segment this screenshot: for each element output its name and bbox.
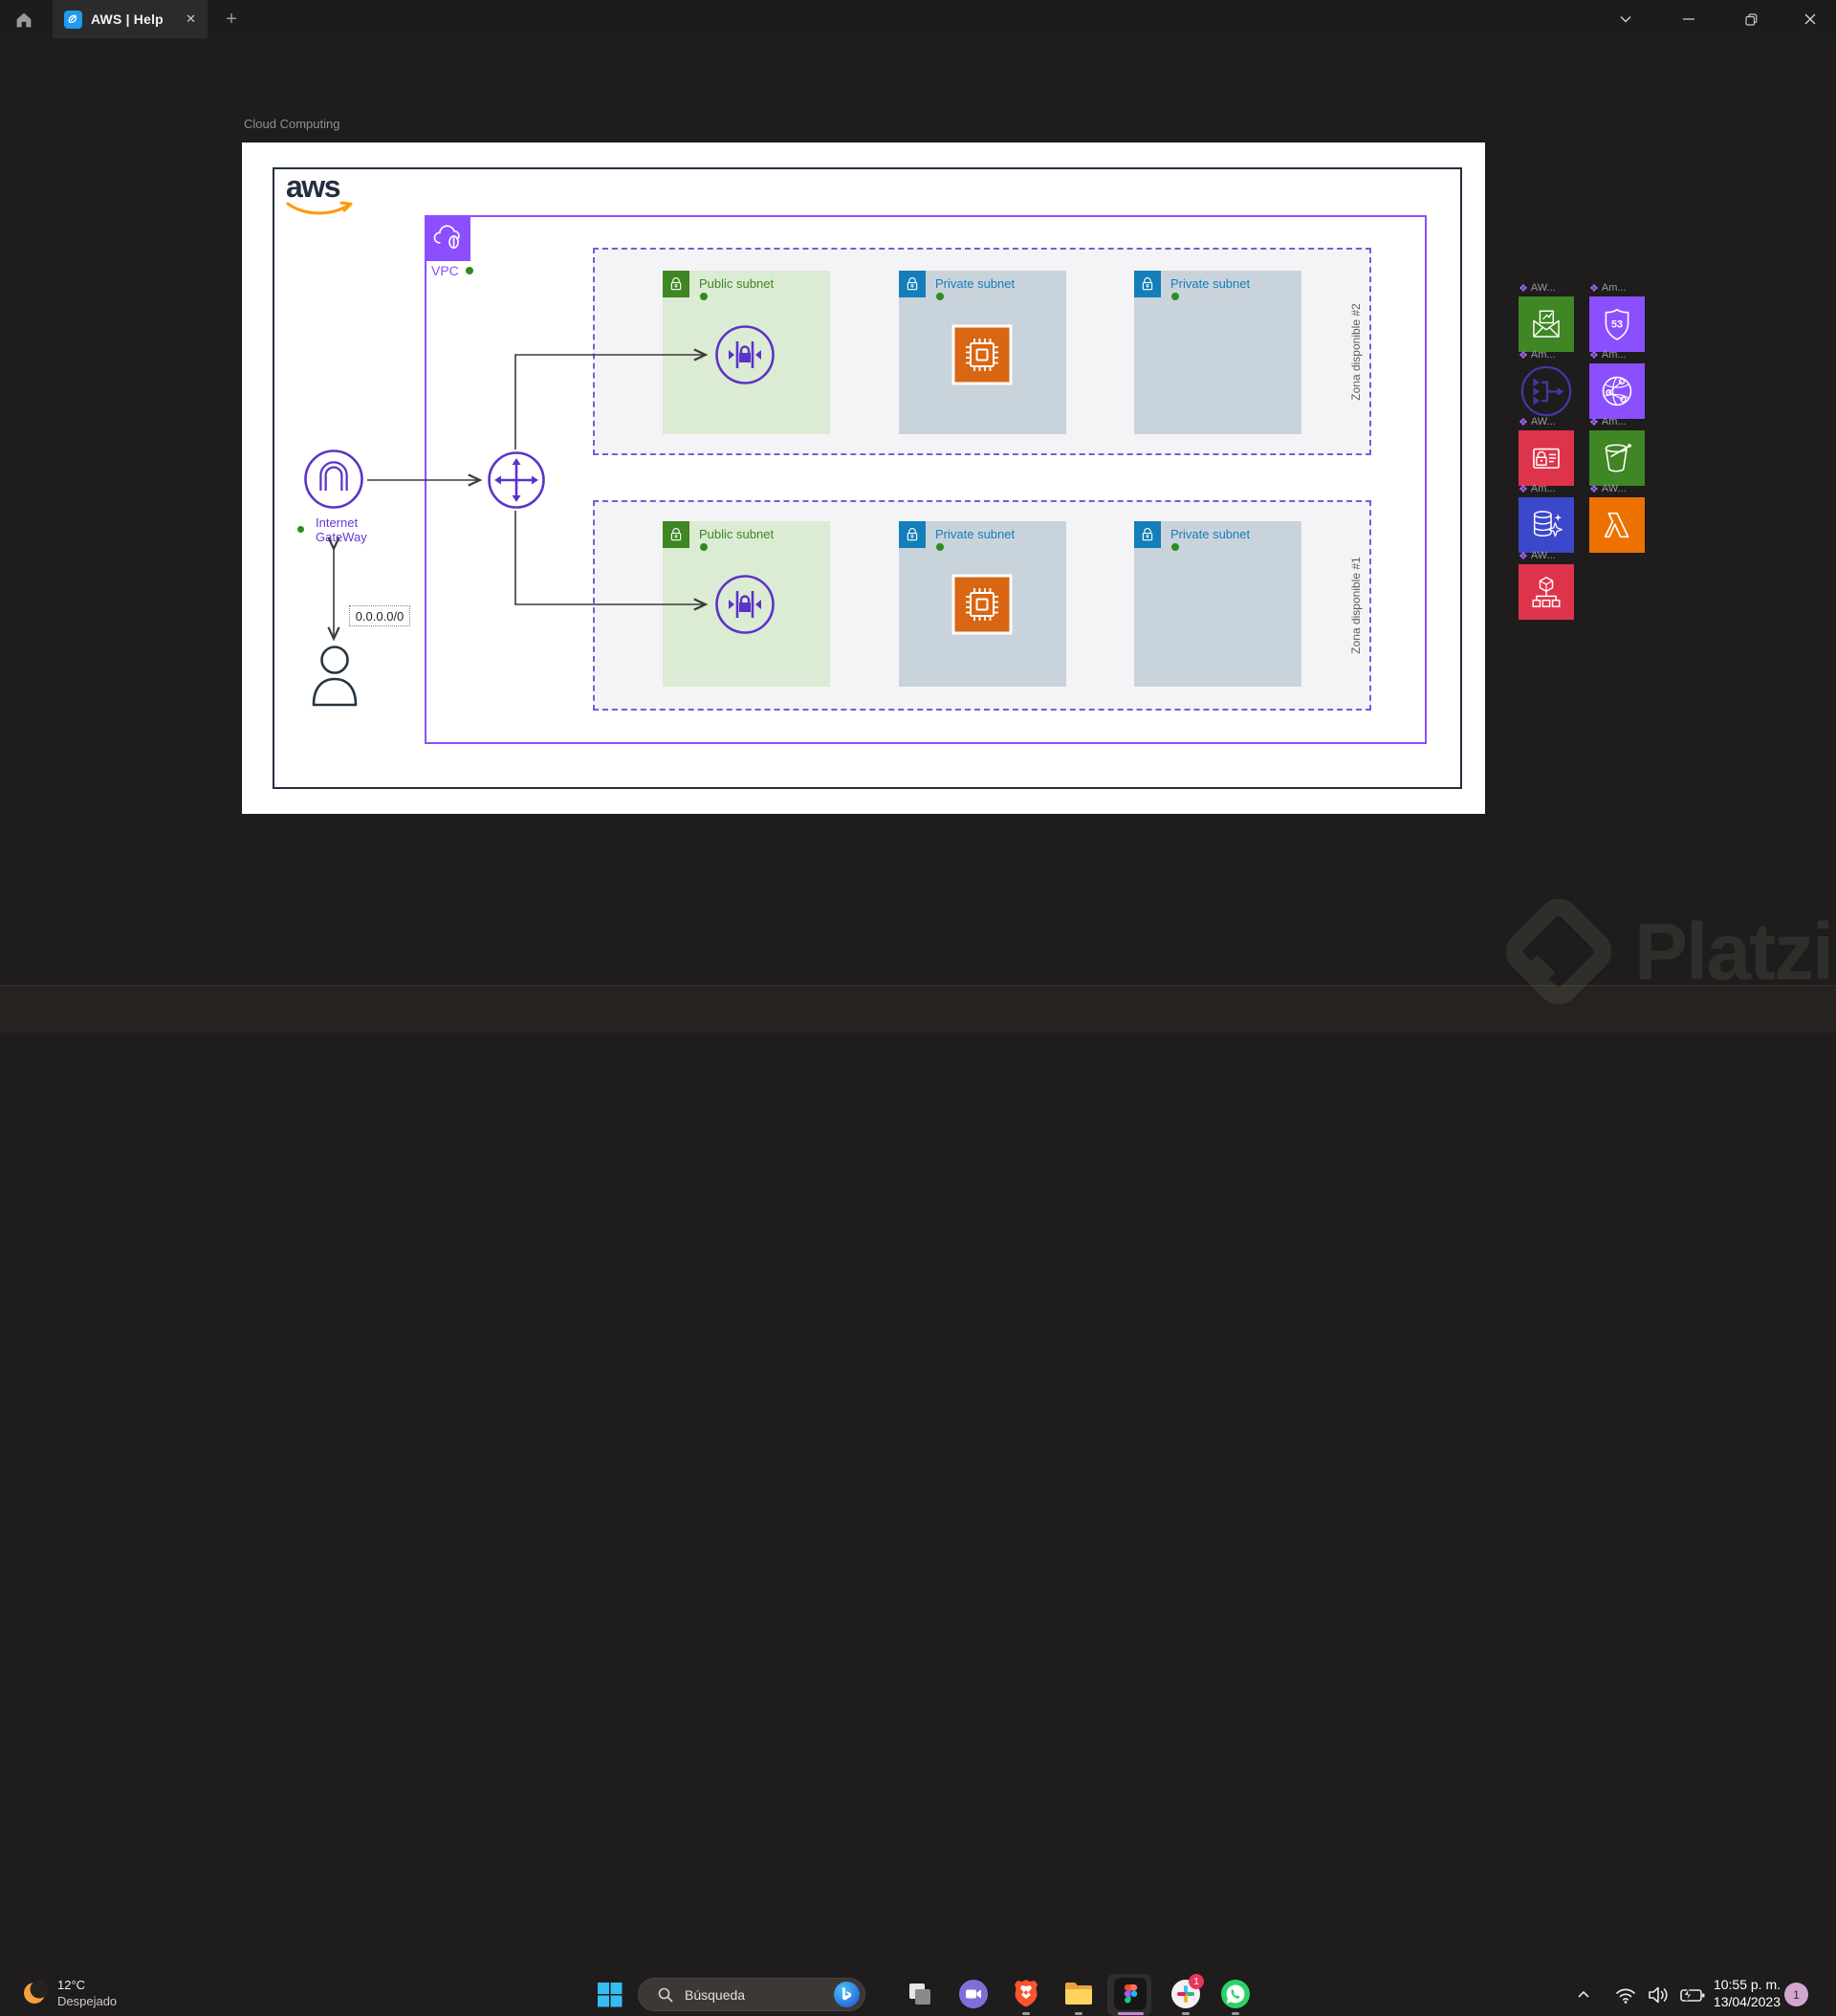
title-bar: AWS | Help ✕ + bbox=[0, 0, 1836, 38]
restore-icon bbox=[1744, 12, 1759, 27]
cloudfront-globe-icon bbox=[1589, 363, 1645, 419]
tray-date-text: 13/04/2023 bbox=[1666, 1993, 1781, 2010]
arrow-router-to-lb-az1[interactable] bbox=[515, 511, 705, 604]
component-diamond-icon: ❖ bbox=[1519, 349, 1528, 362]
start-button[interactable] bbox=[597, 1982, 623, 2012]
task-view-icon bbox=[907, 1981, 933, 2007]
weather-condition: Despejado bbox=[57, 1993, 117, 2009]
running-indicator bbox=[1075, 2012, 1082, 2015]
ses-mail-icon bbox=[1519, 296, 1574, 352]
aurora-database-icon bbox=[1519, 497, 1574, 553]
watermark-text: Platzi bbox=[1634, 906, 1832, 998]
palette-item-route53[interactable]: ❖Am... 53 bbox=[1589, 281, 1649, 352]
component-diamond-icon: ❖ bbox=[1589, 416, 1599, 428]
video-call-icon bbox=[958, 1979, 989, 2009]
taskbar-search[interactable]: Búsqueda bbox=[638, 1978, 865, 2011]
clock-widget[interactable]: 10:55 p. m. 13/04/2023 bbox=[1666, 1976, 1781, 2010]
clear-night-icon bbox=[21, 1979, 50, 2007]
organizations-cube-icon bbox=[1519, 564, 1574, 620]
palette-item-label: Am... bbox=[1602, 416, 1627, 427]
new-tab-button[interactable]: + bbox=[218, 6, 245, 33]
running-indicator bbox=[1232, 2012, 1239, 2015]
notification-count-badge[interactable]: 1 bbox=[1784, 1983, 1808, 2006]
palette-item-elb[interactable]: ❖Am... bbox=[1519, 348, 1578, 419]
whatsapp-app-button[interactable] bbox=[1220, 1979, 1251, 2014]
restore-button[interactable] bbox=[1729, 0, 1773, 38]
component-diamond-icon: ❖ bbox=[1519, 483, 1528, 495]
component-diamond-icon: ❖ bbox=[1589, 282, 1599, 295]
home-icon bbox=[13, 10, 34, 31]
connector-arrows bbox=[242, 142, 1485, 814]
bing-icon[interactable] bbox=[834, 1982, 860, 2007]
tray-time-text: 10:55 p. m. bbox=[1666, 1976, 1781, 1993]
elastic-load-balancer-icon bbox=[1519, 363, 1574, 419]
search-placeholder: Búsqueda bbox=[685, 1987, 822, 2003]
s3-bucket-icon bbox=[1589, 430, 1645, 486]
search-icon bbox=[658, 1987, 673, 2003]
windows-logo-icon bbox=[597, 1982, 623, 2007]
weather-temp: 12°C bbox=[57, 1977, 117, 1993]
component-diamond-icon: ❖ bbox=[1519, 550, 1528, 562]
video-call-app-button[interactable] bbox=[958, 1979, 989, 2014]
taskbar: 12°C Despejado Búsqueda bbox=[0, 985, 1836, 1033]
palette-item-label: AW... bbox=[1531, 282, 1556, 294]
weather-widget[interactable]: 12°C Despejado bbox=[21, 1977, 117, 2009]
palette-item-label: Am... bbox=[1531, 349, 1556, 361]
secrets-manager-icon bbox=[1519, 430, 1574, 486]
tab-title: AWS | Help bbox=[91, 11, 164, 27]
palette-item-s3[interactable]: ❖Am... bbox=[1589, 415, 1649, 486]
component-diamond-icon: ❖ bbox=[1519, 282, 1528, 295]
figjam-file-icon bbox=[64, 11, 82, 29]
running-indicator bbox=[1182, 2012, 1190, 2015]
minimize-icon bbox=[1682, 12, 1695, 26]
close-icon bbox=[1803, 12, 1817, 26]
route53-shield-icon: 53 bbox=[1589, 296, 1645, 352]
figma-icon bbox=[1114, 1978, 1147, 2010]
chevron-down-icon bbox=[1619, 12, 1632, 26]
lambda-icon bbox=[1589, 497, 1645, 553]
tray-expand-button[interactable] bbox=[1576, 1987, 1591, 2007]
wifi-button[interactable] bbox=[1614, 1983, 1637, 2011]
home-button[interactable] bbox=[11, 8, 36, 33]
svg-text:53: 53 bbox=[1611, 319, 1623, 331]
component-diamond-icon: ❖ bbox=[1589, 349, 1599, 362]
file-explorer-icon bbox=[1063, 1980, 1094, 2008]
component-diamond-icon: ❖ bbox=[1589, 483, 1599, 495]
wifi-icon bbox=[1614, 1983, 1637, 2006]
running-indicator bbox=[1022, 2012, 1030, 2015]
palette-item-organizations[interactable]: ❖AW... bbox=[1519, 549, 1578, 620]
palette-item-ses[interactable]: ❖AW... bbox=[1519, 281, 1578, 352]
palette-item-label: AW... bbox=[1531, 550, 1556, 561]
minimize-button[interactable] bbox=[1667, 0, 1711, 38]
palette-item-aurora[interactable]: ❖Am... bbox=[1519, 482, 1578, 553]
palette-item-cloudfront[interactable]: ❖Am... bbox=[1589, 348, 1649, 419]
diagram-frame: aws VPC Zona disponible #2 Zona disponib… bbox=[242, 142, 1485, 814]
window-menu-button[interactable] bbox=[1604, 0, 1648, 38]
file-explorer-button[interactable] bbox=[1063, 1980, 1094, 2013]
task-view-button[interactable] bbox=[907, 1981, 933, 2012]
whatsapp-icon bbox=[1220, 1979, 1251, 2009]
palette-item-secrets-manager[interactable]: ❖AW... bbox=[1519, 415, 1578, 486]
figma-app-button[interactable] bbox=[1114, 1978, 1147, 2015]
tab-close-icon[interactable]: ✕ bbox=[186, 11, 196, 27]
palette-item-label: AW... bbox=[1602, 483, 1627, 494]
frame-title[interactable]: Cloud Computing bbox=[244, 117, 339, 131]
chevron-up-icon bbox=[1576, 1987, 1591, 2003]
brave-icon bbox=[1012, 1978, 1040, 2008]
palette-item-label: Am... bbox=[1602, 282, 1627, 294]
tab-aws-help[interactable]: AWS | Help ✕ bbox=[53, 0, 208, 38]
close-button[interactable] bbox=[1788, 0, 1832, 38]
arrow-router-to-lb-az2[interactable] bbox=[515, 355, 705, 449]
component-diamond-icon: ❖ bbox=[1519, 416, 1528, 428]
palette-item-label: Am... bbox=[1602, 349, 1627, 361]
palette-item-label: Am... bbox=[1531, 483, 1556, 494]
palette-item-lambda[interactable]: ❖AW... bbox=[1589, 482, 1649, 553]
palette-item-label: AW... bbox=[1531, 416, 1556, 427]
slack-notification-badge: 1 bbox=[1189, 1974, 1204, 1989]
brave-app-button[interactable] bbox=[1012, 1978, 1040, 2013]
